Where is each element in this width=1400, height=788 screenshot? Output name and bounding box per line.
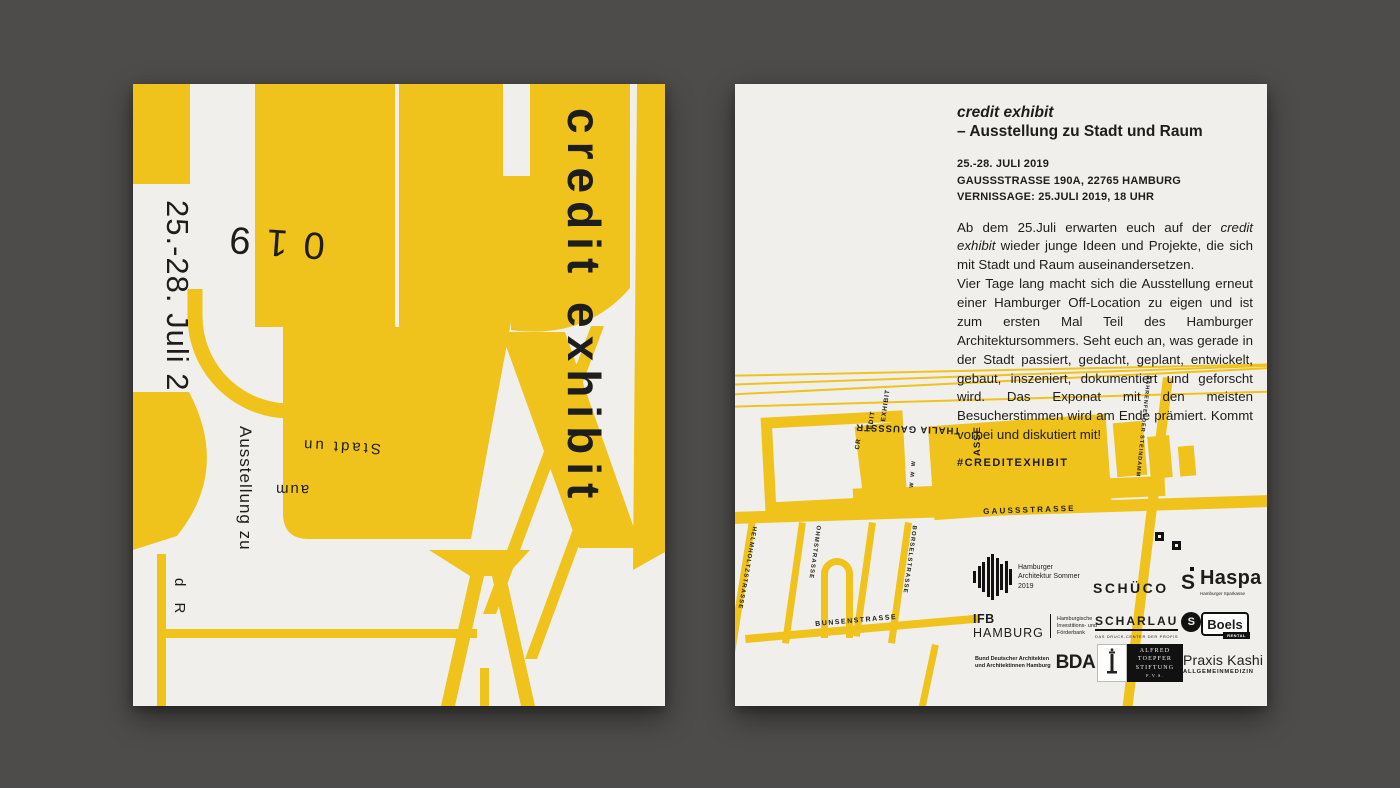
poster-fragment-ausstellung: Ausstellung zu xyxy=(235,426,255,571)
poster-year-fragment: 019 xyxy=(224,217,327,267)
haspa-subline: Hamburger Sparkasse xyxy=(1200,591,1262,596)
ifb-divider xyxy=(1050,614,1051,638)
archsommer-line1: Hamburger xyxy=(1018,563,1080,572)
logo-praxis-kashi: Praxis Kashi ALLGEMEINMEDIZIN xyxy=(1183,652,1263,675)
scharlau-swirl-icon: S xyxy=(1181,612,1201,632)
ifb-desc3: Förderbank xyxy=(1057,630,1097,637)
scharlau-name: SCHARLAU xyxy=(1095,614,1178,631)
event-info: 25.-28. JULI 2019 GAUSSSTRASSE 190A, 227… xyxy=(957,156,1253,206)
flyer-text-block: credit exhibit – Ausstellung zu Stadt un… xyxy=(957,104,1253,469)
map-stop-marker xyxy=(1155,532,1164,541)
toepfer-line2: TOEPFER xyxy=(1127,655,1183,664)
label-helmholtzstrasse: HELMHOLTZSTRASSE xyxy=(735,526,757,675)
poster-fragment-dr: d R xyxy=(171,578,188,628)
letterform-counter xyxy=(503,84,530,176)
architektursommer-bars-icon xyxy=(973,554,1012,600)
body-p1-before: Ab dem 25.Juli erwarten euch auf der xyxy=(957,220,1220,235)
haspa-s-letter: S xyxy=(1181,571,1195,594)
bda-desc2: und Architektinnen Hamburg xyxy=(975,663,1051,670)
logo-toepfer-stiftung: ALFRED TOEPFER STIFTUNG F.V.S. xyxy=(1097,644,1183,682)
kashi-name: Praxis Kashi xyxy=(1183,652,1263,668)
poster-date-vertical: 25.-28. Juli 2 xyxy=(159,200,195,445)
ifb-name2: HAMBURG xyxy=(973,626,1044,640)
hashtag: #CREDITEXHIBIT xyxy=(957,457,1253,469)
flyer-subtitle: – Ausstellung zu Stadt und Raum xyxy=(957,123,1253,141)
poster-title-vertical: credit exhibit xyxy=(557,108,611,694)
haspa-s-icon: S xyxy=(1181,567,1195,593)
toepfer-line1: ALFRED xyxy=(1127,647,1183,656)
logo-architektursommer: Hamburger Architektur Sommer 2019 xyxy=(973,554,1080,600)
label-ohmstrasse: OHMSTRASSE xyxy=(805,525,821,600)
bda-name: BDA xyxy=(1056,652,1096,674)
archsommer-line3: 2019 xyxy=(1018,582,1080,591)
logo-ifb: IFB HAMBURG Hamburgische Investitions- u… xyxy=(973,612,1097,641)
ifb-desc2: Investitions- und xyxy=(1057,623,1097,630)
logo-haspa: S Haspa Hamburger Sparkasse xyxy=(1181,567,1262,596)
map-building xyxy=(853,487,882,502)
haspa-name: Haspa xyxy=(1200,567,1262,590)
toepfer-tower-icon xyxy=(1097,644,1127,682)
toepfer-line4: F.V.S. xyxy=(1127,673,1183,680)
archsommer-line2: Architektur Sommer xyxy=(1018,572,1080,581)
boels-rental-tag: RENTAL xyxy=(1223,632,1250,639)
toepfer-line3: STIFTUNG xyxy=(1127,664,1183,673)
street-borselstrasse-south xyxy=(919,644,939,706)
logo-scharlau: SCHARLAU S DAS DRUCK-CENTER DER PROFIS xyxy=(1095,612,1201,639)
event-dates: 25.-28. JULI 2019 xyxy=(957,156,1253,173)
boels-name: Boels xyxy=(1207,617,1242,632)
logo-schueco: SCHÜCO xyxy=(1093,580,1169,596)
poster-front: 25.-28. Juli 2 019 credit exhibit Ausste… xyxy=(133,84,665,706)
scharlau-subline: DAS DRUCK-CENTER DER PROFIS xyxy=(1095,634,1201,639)
event-address: GAUSSSTRASSE 190A, 22765 HAMBURG xyxy=(957,173,1253,190)
poster-fragment-aum: aum xyxy=(274,481,309,499)
street-ohmstrasse xyxy=(782,522,806,644)
scharlau-s: S xyxy=(1188,616,1195,628)
flyer-title: credit exhibit xyxy=(957,104,1253,122)
map-stop-marker xyxy=(1172,541,1181,550)
label-map-markers: W W W xyxy=(909,452,918,488)
body-p2: Vier Tage lang macht sich die Ausstellun… xyxy=(957,275,1253,445)
body-copy: Ab dem 25.Juli erwarten euch auf der cre… xyxy=(957,219,1253,446)
label-gaussstrasse: GAUSSSTRASSE xyxy=(983,504,1076,516)
event-vernissage: VERNISSAGE: 25.JULI 2019, 18 UHR xyxy=(957,189,1253,206)
bda-desc1: Bund Deutscher Architekten xyxy=(975,656,1051,663)
ifb-desc1: Hamburgische xyxy=(1057,616,1097,623)
logo-boels: Boels RENTAL xyxy=(1201,612,1249,636)
ifb-name1: IFB xyxy=(973,612,1044,626)
kashi-subline: ALLGEMEINMEDIZIN xyxy=(1183,669,1263,675)
logo-bda: Bund Deutscher Architekten und Architekt… xyxy=(975,652,1095,674)
poster-back: GAUSSSTRASSE BAHRENFELDER STEINDAMM HELM… xyxy=(735,84,1267,706)
body-p1-after: wieder junge Ideen und Projekte, die sic… xyxy=(957,238,1253,272)
